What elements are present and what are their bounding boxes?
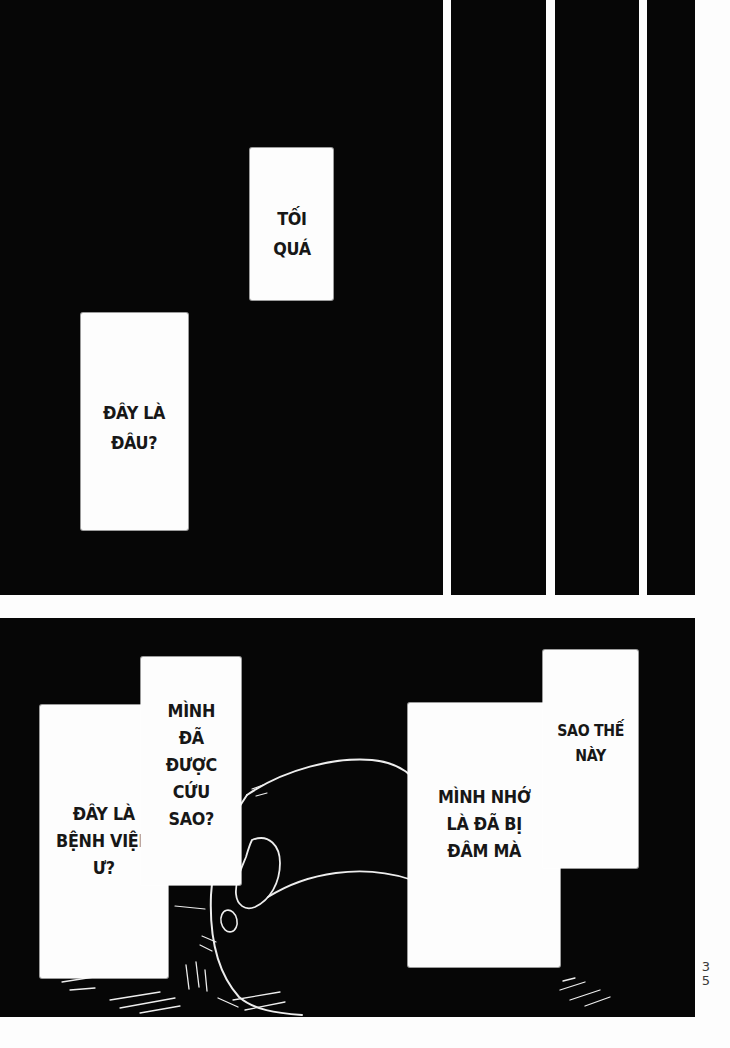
speech-bubble-toi-qua: TỐI QUÁ xyxy=(250,148,333,300)
panel-vertical-bar-1 xyxy=(451,0,546,595)
speech-bubble-sao-the-nay: SAO THẾ NÀY xyxy=(543,650,638,868)
bubble-line: ĐÂY LÀ xyxy=(56,801,151,828)
panel-vertical-bar-3 xyxy=(647,0,695,595)
page-number-digit: 3 xyxy=(697,960,715,974)
bubble-line: BỆNH VIỆN xyxy=(56,828,151,855)
bubble-text: MÌNH ĐÃ ĐƯỢC CỨU SAO? xyxy=(165,698,216,833)
bubble-line: ĐÂU? xyxy=(103,428,165,458)
bubble-text: ĐÂY LÀ BỆNH VIỆN Ư? xyxy=(56,801,151,882)
bubble-text: TỐI QUÁ xyxy=(273,204,311,264)
bubble-line: MÌNH NHỚ xyxy=(438,784,531,811)
bubble-line: SAO THẾ xyxy=(557,719,624,744)
page-number-digit: 5 xyxy=(697,974,715,988)
bubble-line: ĐÂM MÀ xyxy=(438,838,531,865)
bubble-line: LÀ ĐÃ BỊ xyxy=(438,811,531,838)
bubble-line: CỨU xyxy=(165,779,216,806)
bubble-line: Ư? xyxy=(56,855,151,882)
panel-vertical-bar-2 xyxy=(555,0,639,595)
bubble-line: MÌNH xyxy=(165,698,216,725)
page-number: 3 5 xyxy=(697,960,715,988)
speech-bubble-day-la-dau: ĐÂY LÀ ĐÂU? xyxy=(81,313,188,530)
bubble-line: ĐÃ xyxy=(165,725,216,752)
bubble-line: TỐI xyxy=(273,204,311,234)
bubble-line: SAO? xyxy=(165,806,216,833)
bubble-line: QUÁ xyxy=(273,234,311,264)
bubble-text: MÌNH NHỚ LÀ ĐÃ BỊ ĐÂM MÀ xyxy=(438,784,531,865)
bubble-line: ĐƯỢC xyxy=(165,752,216,779)
bubble-line: ĐÂY LÀ xyxy=(103,398,165,428)
bubble-line: NÀY xyxy=(557,744,624,769)
panel-top-main xyxy=(0,0,443,595)
speech-bubble-duoc-cuu: MÌNH ĐÃ ĐƯỢC CỨU SAO? xyxy=(141,657,241,885)
manga-page: ĐÂY LÀ ĐÂU? TỐI QUÁ ĐÂY LÀ BỆNH VIỆN Ư? … xyxy=(0,0,730,1048)
bubble-text: ĐÂY LÀ ĐÂU? xyxy=(103,398,165,458)
bubble-text: SAO THẾ NÀY xyxy=(557,719,624,769)
speech-bubble-bi-dam: MÌNH NHỚ LÀ ĐÃ BỊ ĐÂM MÀ xyxy=(408,703,560,967)
